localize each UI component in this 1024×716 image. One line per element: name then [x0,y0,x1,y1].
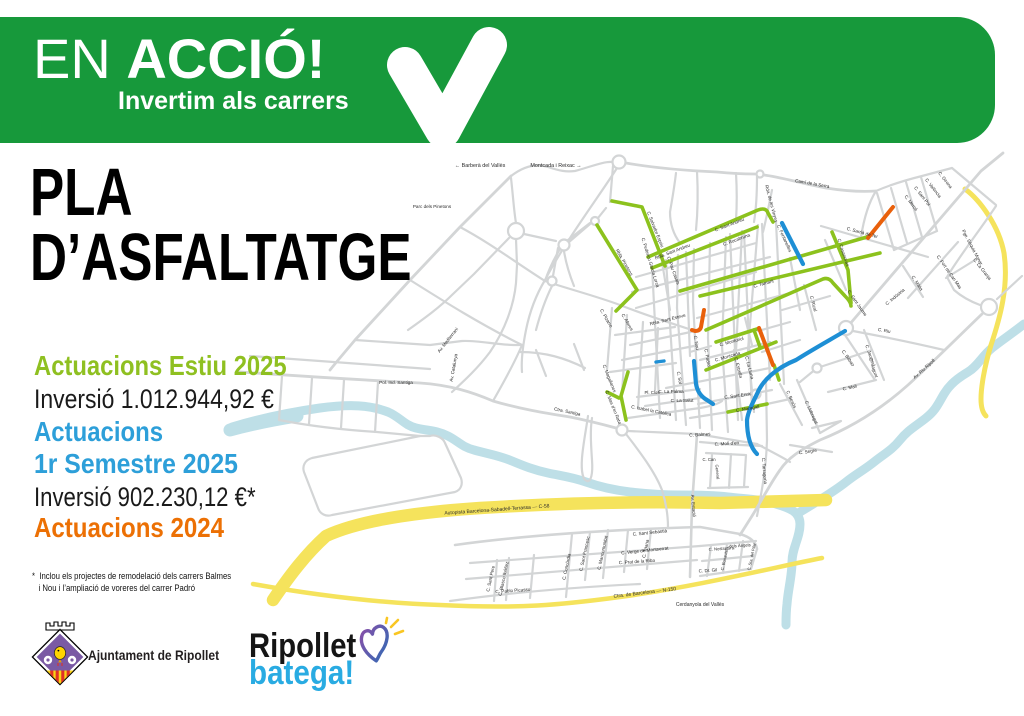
svg-text:dels Àngels: dels Àngels [729,542,751,548]
svg-text:C. Can: C. Can [702,457,716,462]
svg-text:Ctra. de Barcelona — N-150: Ctra. de Barcelona — N-150 [613,586,677,600]
svg-text:C. La Lluna: C. La Lluna [744,356,755,380]
svg-text:C. Sant Andreu: C. Sant Andreu [714,217,745,233]
svg-text:C. Molí d’en: C. Molí d’en [714,440,739,447]
svg-text:Av. Catalunya: Av. Catalunya [449,353,459,382]
svg-text:C. Llobregat: C. Llobregat [804,400,819,425]
svg-text:C. Sol: C. Sol [676,371,683,384]
svg-text:C. Indústria: C. Indústria [884,287,906,306]
svg-text:Camí de la Serra: Camí de la Serra [795,178,831,189]
svg-text:Montcada i Reixac →: Montcada i Reixac → [530,163,581,169]
svg-text:Parc dels Pinetons: Parc dels Pinetons [413,204,452,209]
svg-text:General: General [714,464,720,479]
svg-text:Av. Mediterrani: Av. Mediterrani [436,327,459,354]
svg-text:C. Mall: C. Mall [842,384,857,392]
svg-text:Av. Riu Ripoll: Av. Riu Ripoll [912,358,936,380]
svg-text:C. Dr. Gil: C. Dr. Gil [698,567,717,573]
svg-text:C. La Palma: C. La Palma [658,389,684,394]
svg-text:C. Afores: C. Afores [620,313,634,332]
svg-text:C. Tarragona: C. Tarragona [761,457,768,484]
svg-text:← Barberà del Vallès: ← Barberà del Vallès [455,163,506,169]
svg-text:C. Sagunt: C. Sagunt [868,357,879,379]
svg-text:C. Riu: C. Riu [878,327,892,334]
svg-text:C. Girona: C. Girona [937,171,953,190]
svg-text:C. Nou: C. Nou [693,335,700,350]
svg-text:C. La Salut: C. La Salut [671,398,694,403]
svg-text:Cerdanyola del Vallès: Cerdanyola del Vallès [676,602,725,608]
svg-text:Pol. Ind. Santiga: Pol. Ind. Santiga [379,380,413,385]
